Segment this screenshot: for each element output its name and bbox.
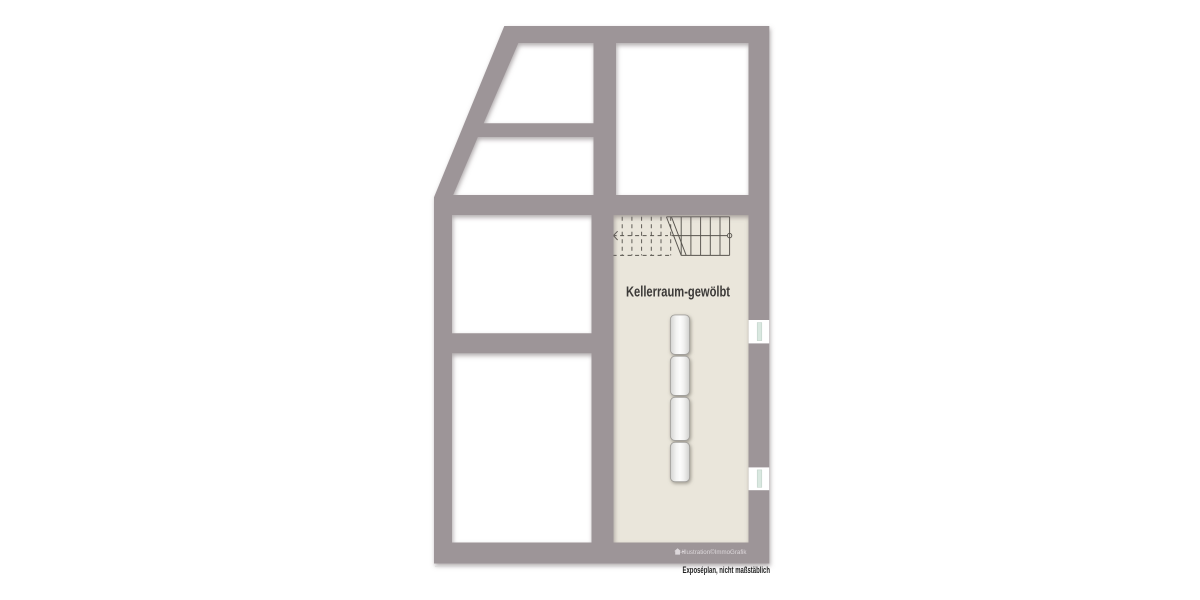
svg-text:Kellerraum-gewölbt: Kellerraum-gewölbt [626, 284, 730, 301]
svg-text:Exposéplan, nicht maßstäblich: Exposéplan, nicht maßstäblich [683, 565, 771, 575]
svg-text:-Illustration©ImmoGrafik: -Illustration©ImmoGrafik [680, 548, 747, 556]
